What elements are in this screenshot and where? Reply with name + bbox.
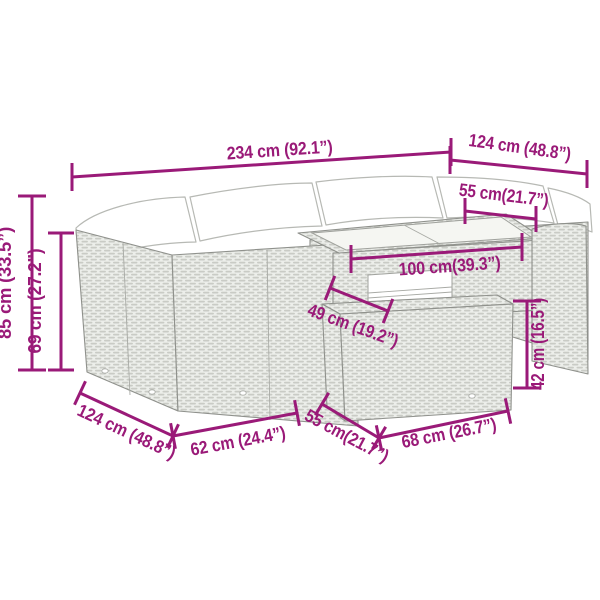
dimension-label: 124 cm (48.8”): [467, 130, 572, 164]
dimension-label: 42 cm (16.5”): [528, 298, 548, 390]
dimension-label: 62 cm (24.4”): [189, 422, 287, 459]
dimension-diagram: 234 cm (92.1”) 124 cm (48.8”) 55 cm(21.7…: [0, 0, 600, 600]
dimension-label: 85 cm (33.5”): [0, 227, 15, 339]
dimension-backrest-height: 69 cm (27.2”): [25, 233, 74, 370]
diagram-canvas: 234 cm (92.1”) 124 cm (48.8”) 55 cm(21.7…: [0, 0, 600, 600]
screw-dot: [469, 394, 475, 398]
dimension-label: 69 cm (27.2”): [25, 248, 45, 353]
back-cushion-corner: [316, 176, 443, 225]
screw-dot: [240, 391, 246, 395]
dimension-label: 68 cm (26.7”): [400, 414, 498, 452]
screw-dot: [102, 369, 108, 373]
screw-dot: [149, 390, 155, 394]
